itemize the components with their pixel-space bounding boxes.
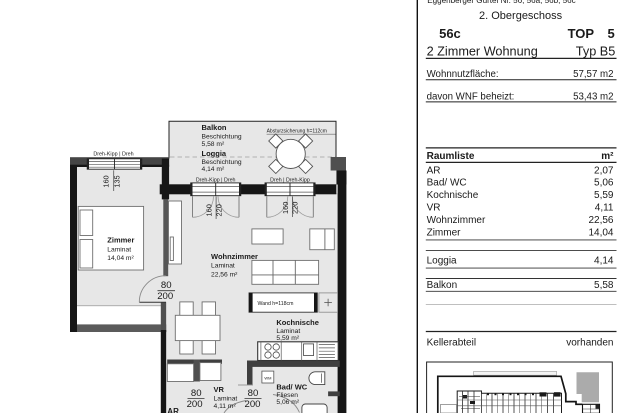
svg-text:Dreh-Kipp | Dreh: Dreh-Kipp | Dreh xyxy=(196,177,236,183)
svg-text:Laminat: Laminat xyxy=(211,263,235,270)
svg-text:Bad/ WC: Bad/ WC xyxy=(427,178,467,189)
svg-text:VR: VR xyxy=(427,203,441,214)
svg-text:14,04: 14,04 xyxy=(588,228,613,239)
svg-text:4,11 m²: 4,11 m² xyxy=(214,403,237,410)
svg-text:5,06: 5,06 xyxy=(594,178,614,189)
svg-text:Wand h=118cm: Wand h=118cm xyxy=(258,301,294,307)
svg-text:AR: AR xyxy=(427,165,441,176)
svg-text:Fliesen: Fliesen xyxy=(276,392,298,399)
svg-text:53,43 m2: 53,43 m2 xyxy=(573,91,613,102)
svg-text:Bad/ WC: Bad/ WC xyxy=(276,383,307,392)
svg-text:Laminat: Laminat xyxy=(107,246,131,253)
svg-text:160: 160 xyxy=(205,204,214,216)
svg-text:5,58: 5,58 xyxy=(594,280,614,291)
svg-text:2,07: 2,07 xyxy=(594,165,614,176)
svg-text:4,11: 4,11 xyxy=(595,203,614,214)
svg-text:14,04 m²: 14,04 m² xyxy=(107,255,134,262)
svg-text:vorhanden: vorhanden xyxy=(566,338,613,349)
svg-text:AR: AR xyxy=(167,407,179,413)
svg-text:Dreh | Dreh-Kipp: Dreh | Dreh-Kipp xyxy=(270,177,310,183)
svg-text:5,06 m²: 5,06 m² xyxy=(276,399,299,406)
svg-text:Dreh-Kipp | Dreh: Dreh-Kipp | Dreh xyxy=(93,151,133,157)
svg-text:200: 200 xyxy=(157,291,173,302)
svg-text:200: 200 xyxy=(244,399,260,410)
svg-text:80: 80 xyxy=(248,388,259,399)
svg-text:5,58 m²: 5,58 m² xyxy=(202,141,225,148)
svg-text:4,14 m²: 4,14 m² xyxy=(202,166,225,173)
svg-text:davon WNF beheizt:: davon WNF beheizt: xyxy=(427,91,515,102)
svg-text:80: 80 xyxy=(191,388,202,399)
svg-text:Loggia: Loggia xyxy=(202,149,227,158)
svg-text:Balkon: Balkon xyxy=(427,280,458,291)
svg-text:200: 200 xyxy=(187,399,203,410)
svg-text:Kochnische: Kochnische xyxy=(276,318,319,327)
svg-text:Laminat: Laminat xyxy=(214,395,238,402)
svg-text:WM: WM xyxy=(264,375,271,380)
svg-text:Zimmer: Zimmer xyxy=(107,236,134,245)
svg-text:80: 80 xyxy=(161,280,172,291)
svg-text:160: 160 xyxy=(281,202,290,214)
svg-text:Laminat: Laminat xyxy=(276,328,300,335)
svg-text:5: 5 xyxy=(607,26,614,41)
svg-text:TOP: TOP xyxy=(568,26,595,41)
svg-text:Wohnzimmer: Wohnzimmer xyxy=(211,252,258,261)
svg-text:4,14: 4,14 xyxy=(594,255,614,266)
svg-text:Raumliste: Raumliste xyxy=(427,151,475,162)
svg-text:160: 160 xyxy=(102,175,111,187)
svg-text:Eggenberger Gürtel Nr. 56, 56a: Eggenberger Gürtel Nr. 56, 56a, 56b, 56c xyxy=(427,0,575,5)
svg-text:Wohnnutzfläche:: Wohnnutzfläche: xyxy=(427,69,499,80)
svg-text:57,57 m2: 57,57 m2 xyxy=(573,69,613,80)
svg-text:Beschichtung: Beschichtung xyxy=(202,159,242,166)
svg-text:Kochnische: Kochnische xyxy=(427,190,479,201)
svg-text:Wohnzimmer: Wohnzimmer xyxy=(427,215,486,226)
svg-text:5,59 m²: 5,59 m² xyxy=(276,335,299,342)
svg-text:Beschichtung: Beschichtung xyxy=(202,134,242,141)
svg-text:Kellerabteil: Kellerabteil xyxy=(427,338,476,349)
svg-text:Balkon: Balkon xyxy=(202,123,227,132)
svg-text:Loggia: Loggia xyxy=(427,255,457,266)
svg-text:22,56 m²: 22,56 m² xyxy=(211,271,238,278)
svg-text:56c: 56c xyxy=(439,26,461,41)
svg-text:Typ B5: Typ B5 xyxy=(576,45,616,59)
svg-text:m²: m² xyxy=(601,151,614,162)
svg-text:5,59: 5,59 xyxy=(594,190,614,201)
svg-text:22,56: 22,56 xyxy=(588,215,613,226)
svg-text:VR: VR xyxy=(214,385,225,394)
svg-text:Zimmer: Zimmer xyxy=(427,228,462,239)
svg-text:2 Zimmer Wohnung: 2 Zimmer Wohnung xyxy=(427,45,538,59)
svg-text:220: 220 xyxy=(291,202,300,214)
svg-text:2. Obergeschoss: 2. Obergeschoss xyxy=(479,10,563,22)
